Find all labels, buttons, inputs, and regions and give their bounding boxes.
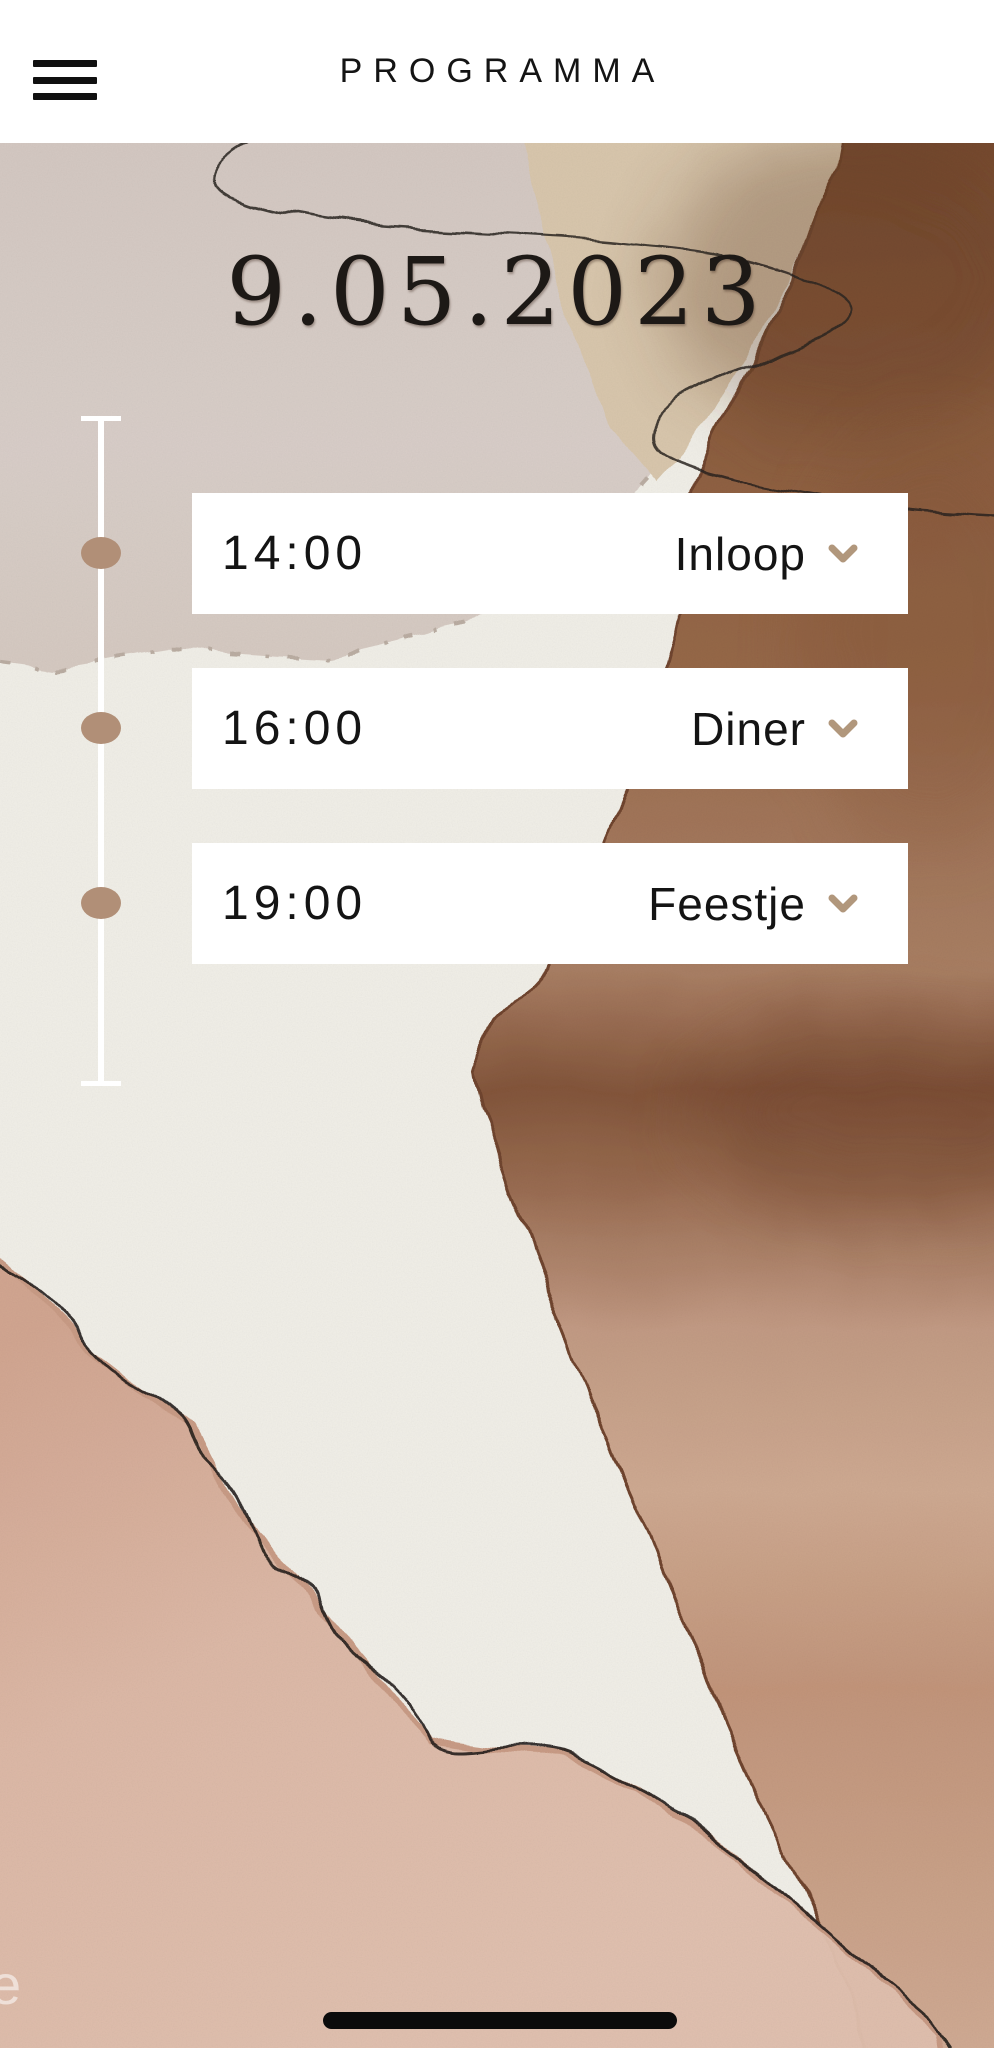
event-time: 16:00 xyxy=(222,701,367,756)
timeline-dot xyxy=(81,887,121,919)
chevron-down-icon[interactable] xyxy=(828,894,858,914)
page-title: PROGRAMMA xyxy=(0,0,994,143)
chevron-down-icon[interactable] xyxy=(828,544,858,564)
timeline-cap-bottom xyxy=(81,1081,121,1086)
watermark-letter: e xyxy=(0,1952,21,2017)
home-indicator[interactable] xyxy=(323,2012,677,2029)
event-label: Feestje xyxy=(648,877,806,931)
event-time: 14:00 xyxy=(222,526,367,581)
timeline-cap-top xyxy=(81,416,121,421)
chevron-down-icon[interactable] xyxy=(828,719,858,739)
schedule-item-feestje[interactable]: 19:00 Feestje xyxy=(192,843,908,964)
timeline-dot xyxy=(81,712,121,744)
event-label: Diner xyxy=(691,702,806,756)
schedule-item-diner[interactable]: 16:00 Diner xyxy=(192,668,908,789)
event-label: Inloop xyxy=(675,527,806,581)
schedule-item-inloop[interactable]: 14:00 Inloop xyxy=(192,493,908,614)
event-date: 9.05.2023 xyxy=(0,238,994,347)
timeline-line xyxy=(98,418,104,1084)
timeline-dot xyxy=(81,537,121,569)
event-time: 19:00 xyxy=(222,876,367,931)
app-header: PROGRAMMA xyxy=(0,0,994,143)
